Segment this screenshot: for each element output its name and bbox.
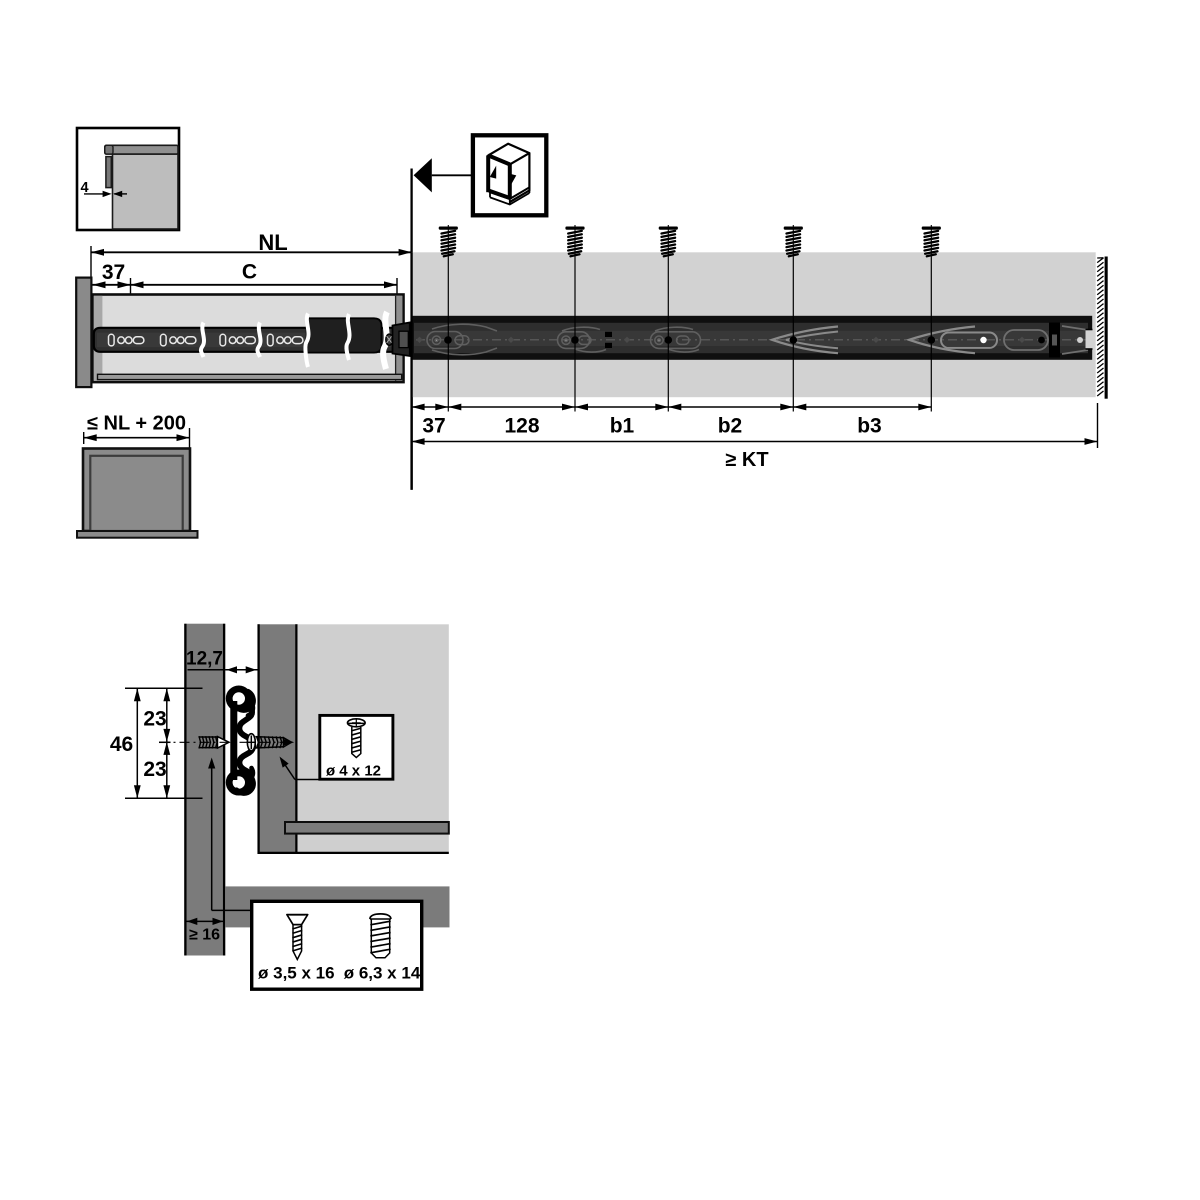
- svg-text:b2: b2: [718, 415, 743, 438]
- svg-text:b1: b1: [610, 415, 635, 438]
- svg-text:b3: b3: [857, 415, 882, 438]
- svg-text:≤ NL + 200: ≤ NL + 200: [87, 413, 186, 435]
- svg-text:12,7: 12,7: [186, 649, 223, 670]
- svg-text:37: 37: [422, 415, 445, 438]
- svg-text:23: 23: [143, 758, 166, 781]
- svg-text:128: 128: [504, 415, 539, 438]
- svg-text:NL: NL: [258, 230, 287, 255]
- svg-text:ø 4 x 12: ø 4 x 12: [326, 763, 381, 780]
- svg-text:≥ KT: ≥ KT: [725, 449, 768, 471]
- svg-text:ø 3,5 x 16: ø 3,5 x 16: [258, 964, 335, 983]
- svg-text:46: 46: [110, 733, 133, 756]
- svg-text:37: 37: [102, 261, 125, 284]
- svg-text:C: C: [242, 261, 257, 284]
- svg-text:23: 23: [143, 708, 166, 731]
- svg-text:≥ 16: ≥ 16: [189, 927, 220, 944]
- svg-text:ø 6,3 x 14: ø 6,3 x 14: [344, 964, 421, 983]
